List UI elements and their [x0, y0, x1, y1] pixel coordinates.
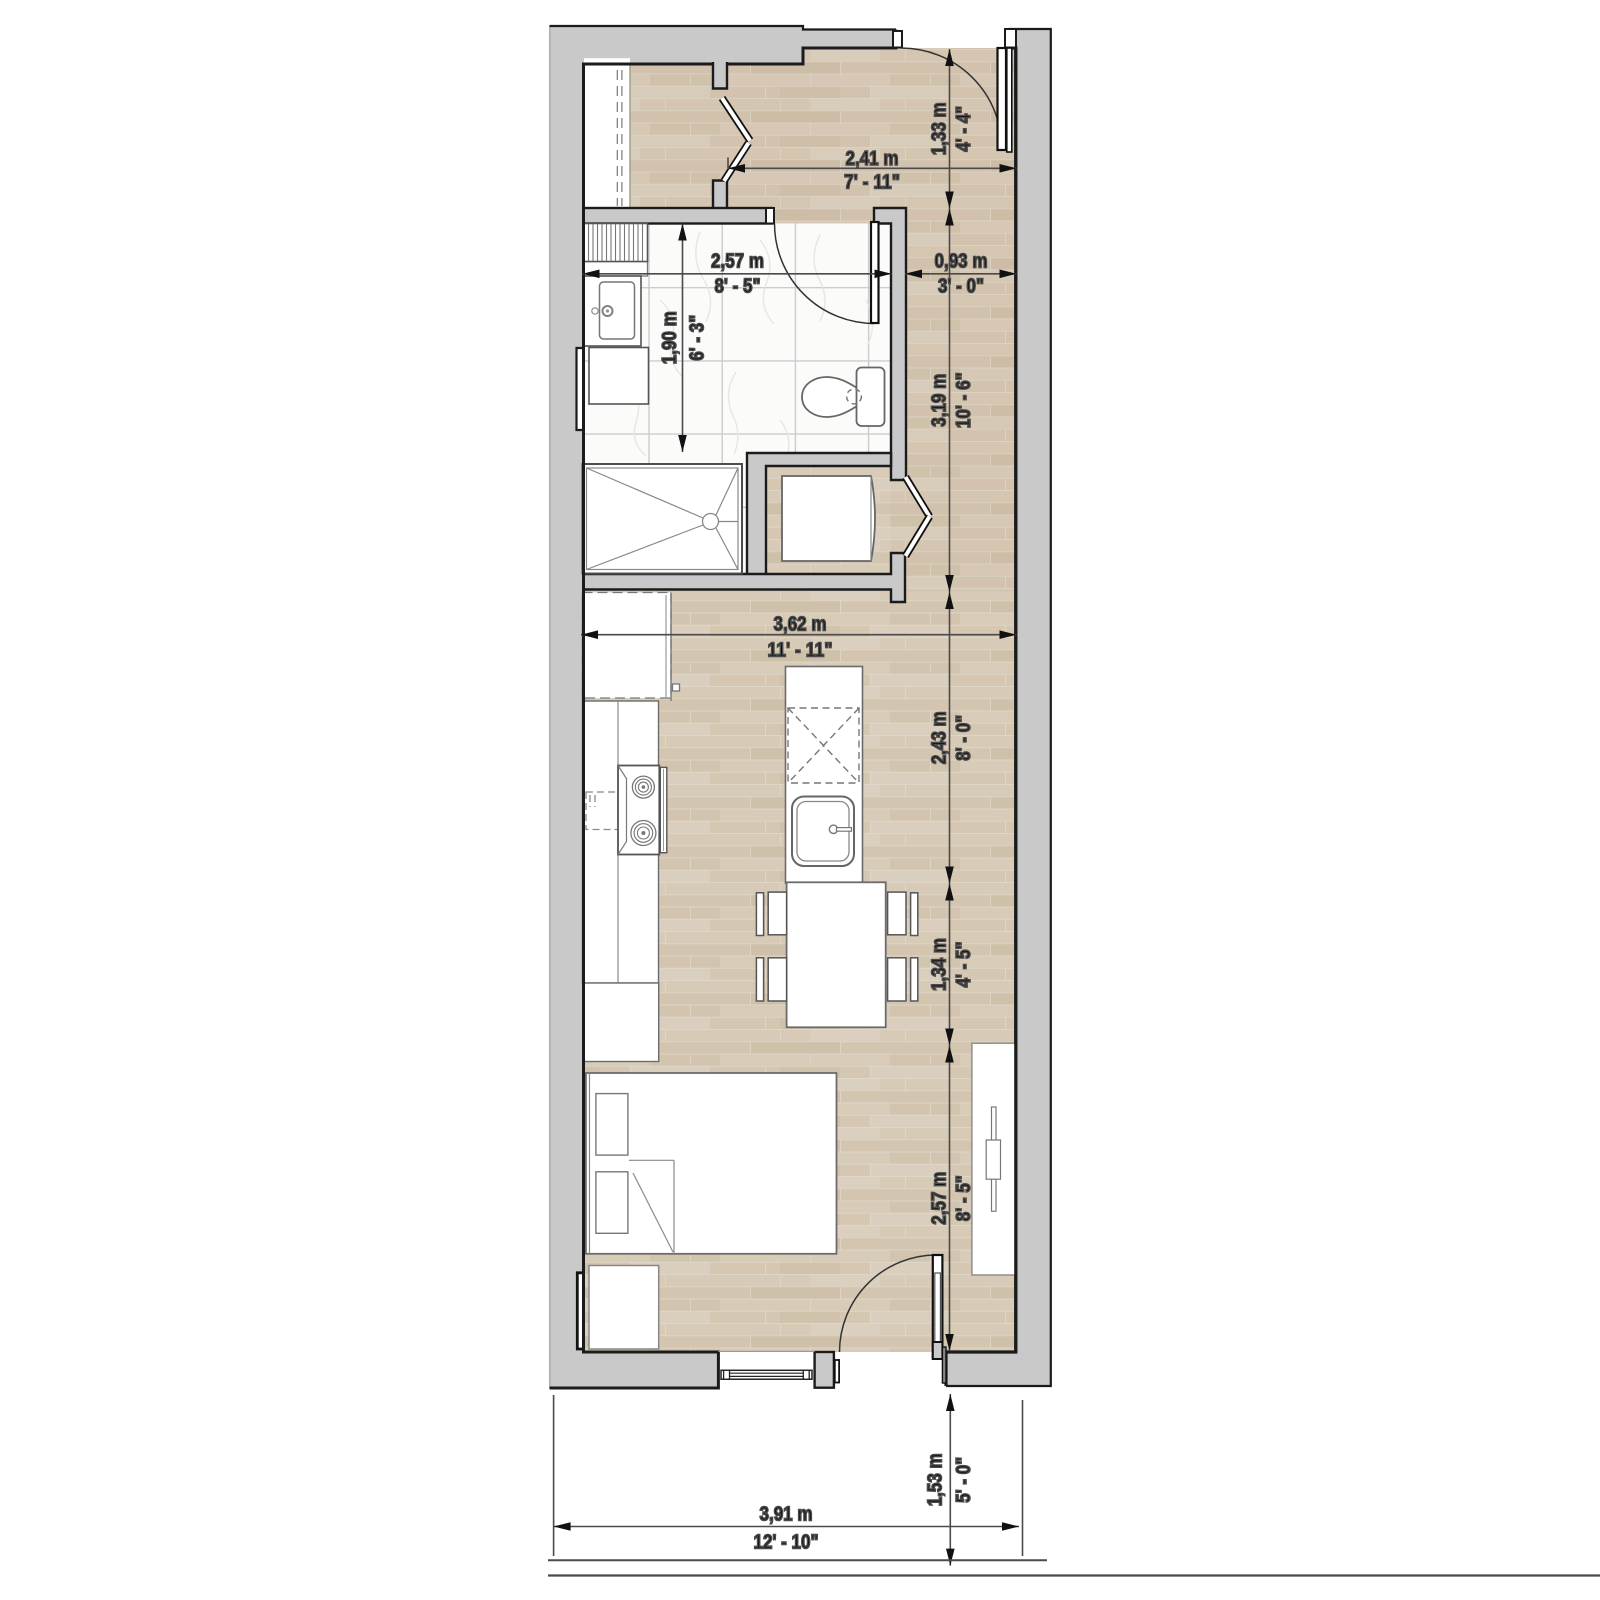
svg-text:8' - 5": 8' - 5": [952, 1175, 975, 1221]
svg-text:1,33 m: 1,33 m: [927, 102, 950, 155]
svg-text:2,43 m: 2,43 m: [927, 711, 950, 764]
svg-text:10' - 6": 10' - 6": [952, 372, 975, 428]
svg-text:3' - 0": 3' - 0": [938, 274, 984, 297]
svg-text:3,91 m: 3,91 m: [760, 1502, 813, 1525]
svg-text:0,93 m: 0,93 m: [935, 250, 988, 273]
svg-text:3,62 m: 3,62 m: [774, 612, 827, 635]
svg-text:2,57 m: 2,57 m: [927, 1172, 950, 1225]
svg-text:4' - 5": 4' - 5": [952, 942, 975, 988]
svg-text:1,34 m: 1,34 m: [927, 938, 950, 991]
svg-text:2,57 m: 2,57 m: [711, 250, 764, 273]
svg-text:5' - 0": 5' - 0": [952, 1457, 975, 1503]
svg-text:7' - 11": 7' - 11": [844, 170, 900, 193]
svg-text:1,90 m: 1,90 m: [658, 311, 681, 364]
svg-text:8' - 5": 8' - 5": [715, 274, 761, 297]
svg-text:3,19 m: 3,19 m: [927, 374, 950, 427]
svg-text:8' - 0": 8' - 0": [952, 715, 975, 761]
svg-text:12' - 10": 12' - 10": [754, 1531, 819, 1554]
svg-text:6' - 3": 6' - 3": [685, 315, 708, 361]
svg-text:1,53 m: 1,53 m: [923, 1453, 946, 1506]
svg-text:11' - 11": 11' - 11": [768, 638, 833, 661]
svg-text:2,41 m: 2,41 m: [846, 147, 899, 170]
svg-text:4' - 4": 4' - 4": [952, 106, 975, 152]
